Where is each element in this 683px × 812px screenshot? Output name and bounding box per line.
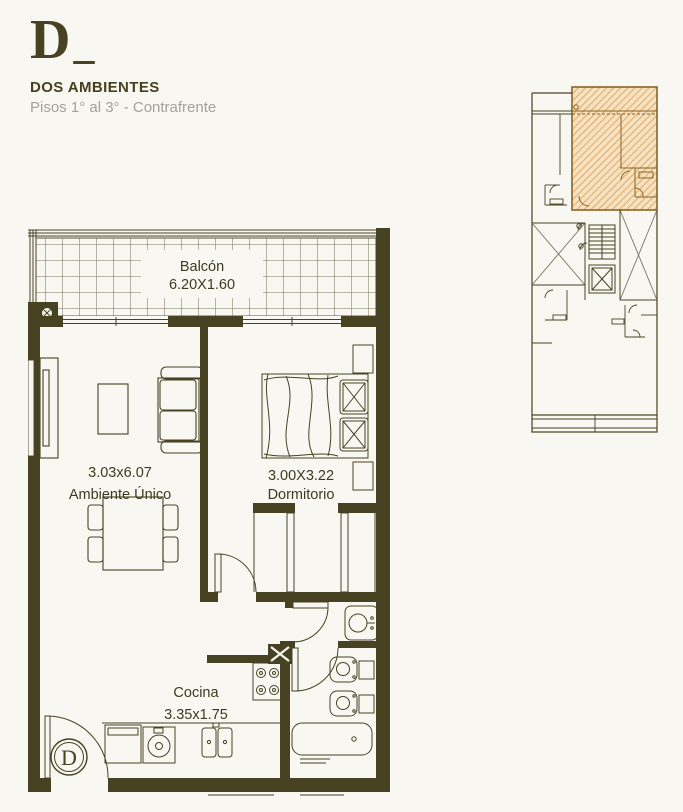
living-dims: 3.03x6.07: [88, 465, 152, 481]
bedroom-name: Dormitorio: [268, 487, 335, 503]
unit-letter-badge: D: [51, 739, 87, 775]
type-label: DOS AMBIENTES: [30, 79, 216, 96]
header: D _ DOS AMBIENTES Pisos 1° al 3° - Contr…: [30, 12, 216, 116]
door-arc-bedroom: [215, 554, 256, 592]
floors-label: Pisos 1° al 3° - Contrafrente: [30, 99, 216, 116]
living-room: 3.03x6.07 Ambiente Único: [40, 358, 205, 570]
sofa: [158, 367, 205, 453]
nightstand: [353, 345, 373, 373]
lower-left-unit: [532, 285, 585, 343]
bidet: [330, 691, 374, 716]
highlighted-unit: [572, 87, 657, 210]
lightwell-x: [532, 210, 657, 300]
vent-duct-icon: [268, 644, 292, 664]
circulation-core: [577, 210, 620, 300]
bedroom-dims: 3.00X3.22: [268, 468, 334, 484]
nightstand: [353, 462, 373, 490]
door-arc-toilette: [293, 602, 328, 642]
unit-underscore: _: [73, 21, 94, 69]
kitchen-sink: [202, 723, 232, 757]
bathtub: [292, 723, 372, 763]
entrance: D: [45, 716, 108, 778]
stairs-icon: [589, 225, 615, 259]
door-arc-bathroom: [292, 648, 338, 691]
unit-title: D _: [30, 12, 216, 69]
bed: [262, 374, 368, 458]
washing-machine: [143, 727, 175, 763]
fridge: [105, 725, 141, 763]
kitchen-name: Cocina: [173, 685, 219, 701]
pillow: [340, 380, 368, 414]
living-name: Ambiente Único: [69, 486, 171, 503]
pillow: [340, 418, 368, 451]
vanity-sink: [345, 606, 378, 640]
kitchen-dims: 3.35x1.75: [164, 707, 228, 723]
dining-table: [88, 497, 178, 570]
toilette: [293, 602, 378, 642]
main-floor-plan: Balcón 6.20X1.60: [28, 228, 390, 803]
elevator-icon: [589, 265, 615, 293]
tv-unit: [40, 358, 58, 458]
cooktop: [253, 663, 282, 700]
side-window: [28, 360, 34, 456]
balcony-name: Balcón: [180, 259, 224, 275]
unit-letter: D: [30, 12, 70, 68]
lower-right-unit: [612, 300, 657, 337]
entrance-unit-letter: D: [61, 745, 77, 770]
rear-balconies: [532, 415, 657, 432]
balcony: Balcón 6.20X1.60: [28, 230, 376, 327]
key-plan: [517, 85, 658, 433]
floor-plan-page: D _ DOS AMBIENTES Pisos 1° al 3° - Contr…: [0, 0, 683, 812]
bedroom: 3.00X3.22 Dormitorio: [215, 345, 375, 592]
coffee-table: [98, 384, 128, 434]
wardrobe: [254, 513, 375, 592]
balcony-dims: 6.20X1.60: [169, 277, 235, 293]
kitchen: Cocina 3.35x1.75: [102, 663, 344, 795]
